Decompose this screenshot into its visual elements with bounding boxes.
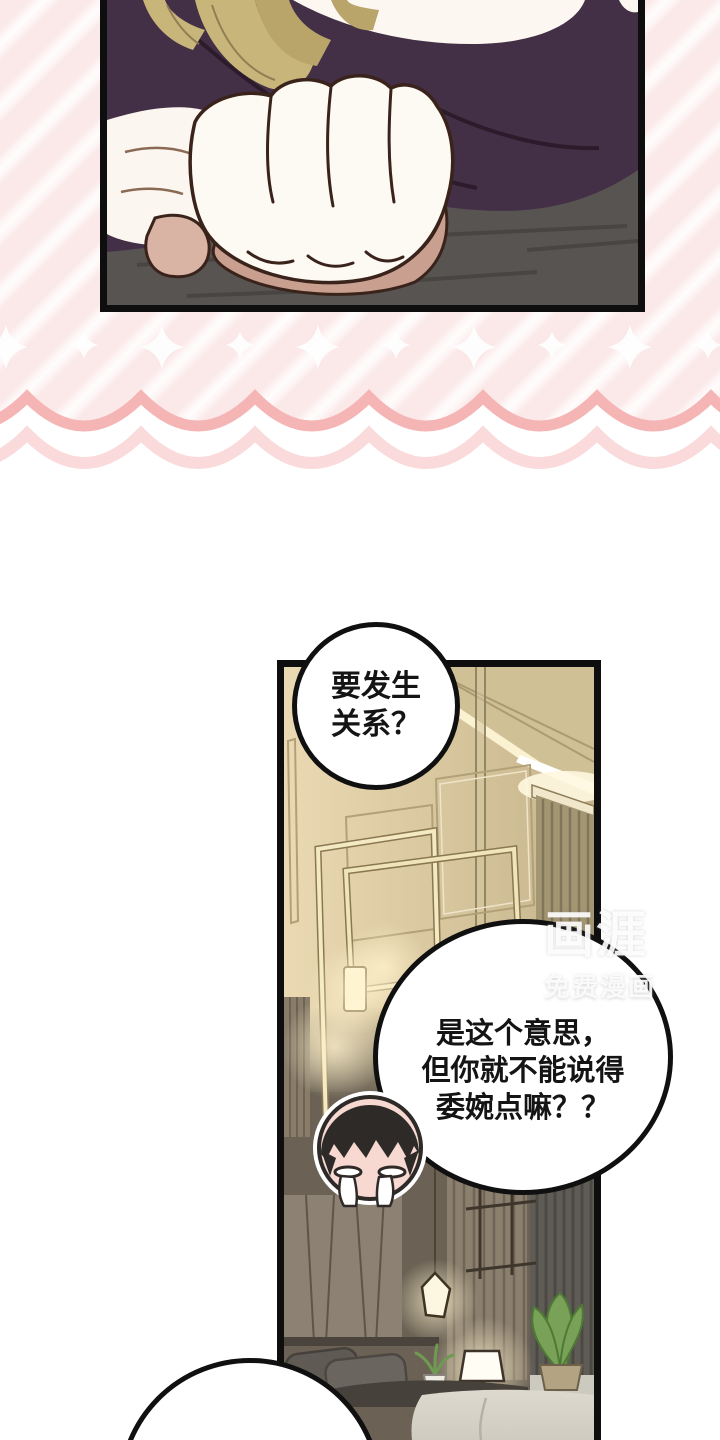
sparkle-icon — [140, 325, 184, 369]
sparkle-icon — [694, 331, 720, 359]
sparkle-icon — [296, 325, 340, 369]
panel-1 — [100, 0, 645, 312]
panel-1-art — [107, 0, 638, 305]
chibi-tear-right — [377, 1176, 393, 1206]
chibi-crying-face — [310, 1088, 430, 1208]
comic-page: 要发生 关系？ 是这个意思， 但你就不能说得 委婉点嘛？？ 画涯 免费漫画 — [0, 0, 720, 1440]
speech-bubble-1-text: 要发生 关系？ — [331, 668, 421, 744]
sparkle-icon — [226, 331, 254, 359]
sparkle-icon — [382, 331, 410, 359]
sparkle-icon — [452, 325, 496, 369]
chibi-tear-left — [339, 1176, 357, 1206]
sparkle-icon — [608, 325, 652, 369]
speech-bubble-2-text: 是这个意思， 但你就不能说得 委婉点嘛？？ — [421, 1016, 624, 1127]
wave-divider — [0, 300, 720, 470]
sparkle-icon — [538, 331, 566, 359]
sparkle-icon — [70, 331, 98, 359]
speech-bubble-1: 要发生 关系？ — [292, 622, 460, 790]
sparkle-row — [0, 325, 720, 369]
sparkle-icon — [0, 325, 28, 369]
